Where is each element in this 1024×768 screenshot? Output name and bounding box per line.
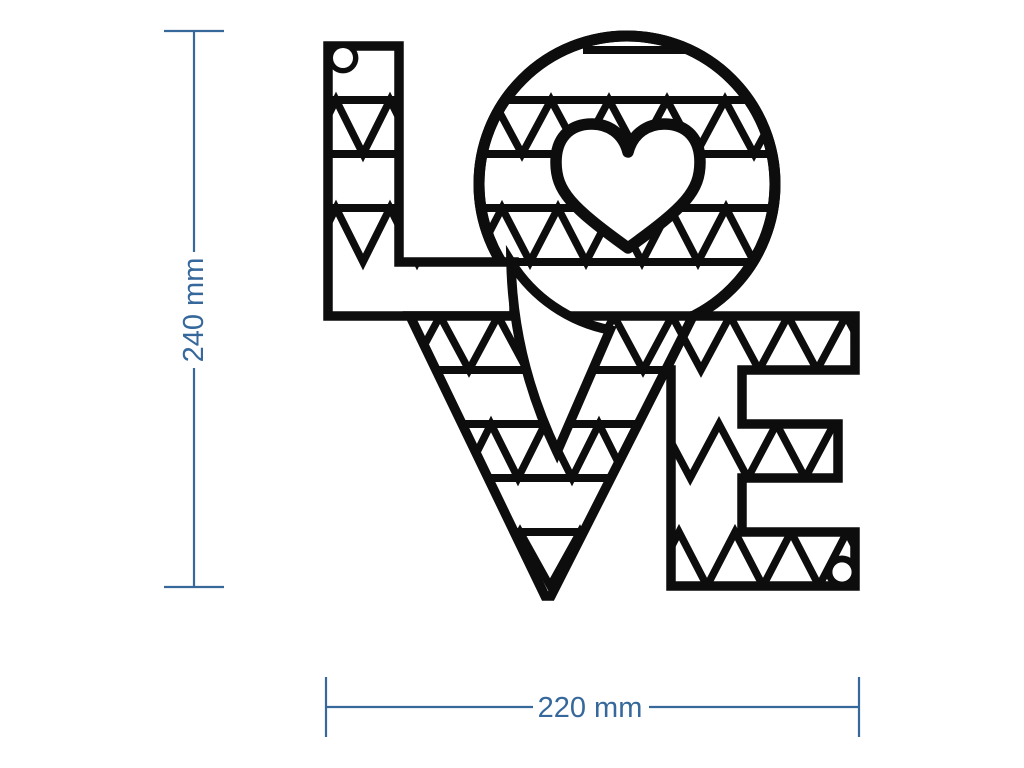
svg-text:240 mm: 240 mm bbox=[178, 258, 210, 363]
svg-text:220 mm: 220 mm bbox=[538, 692, 643, 724]
